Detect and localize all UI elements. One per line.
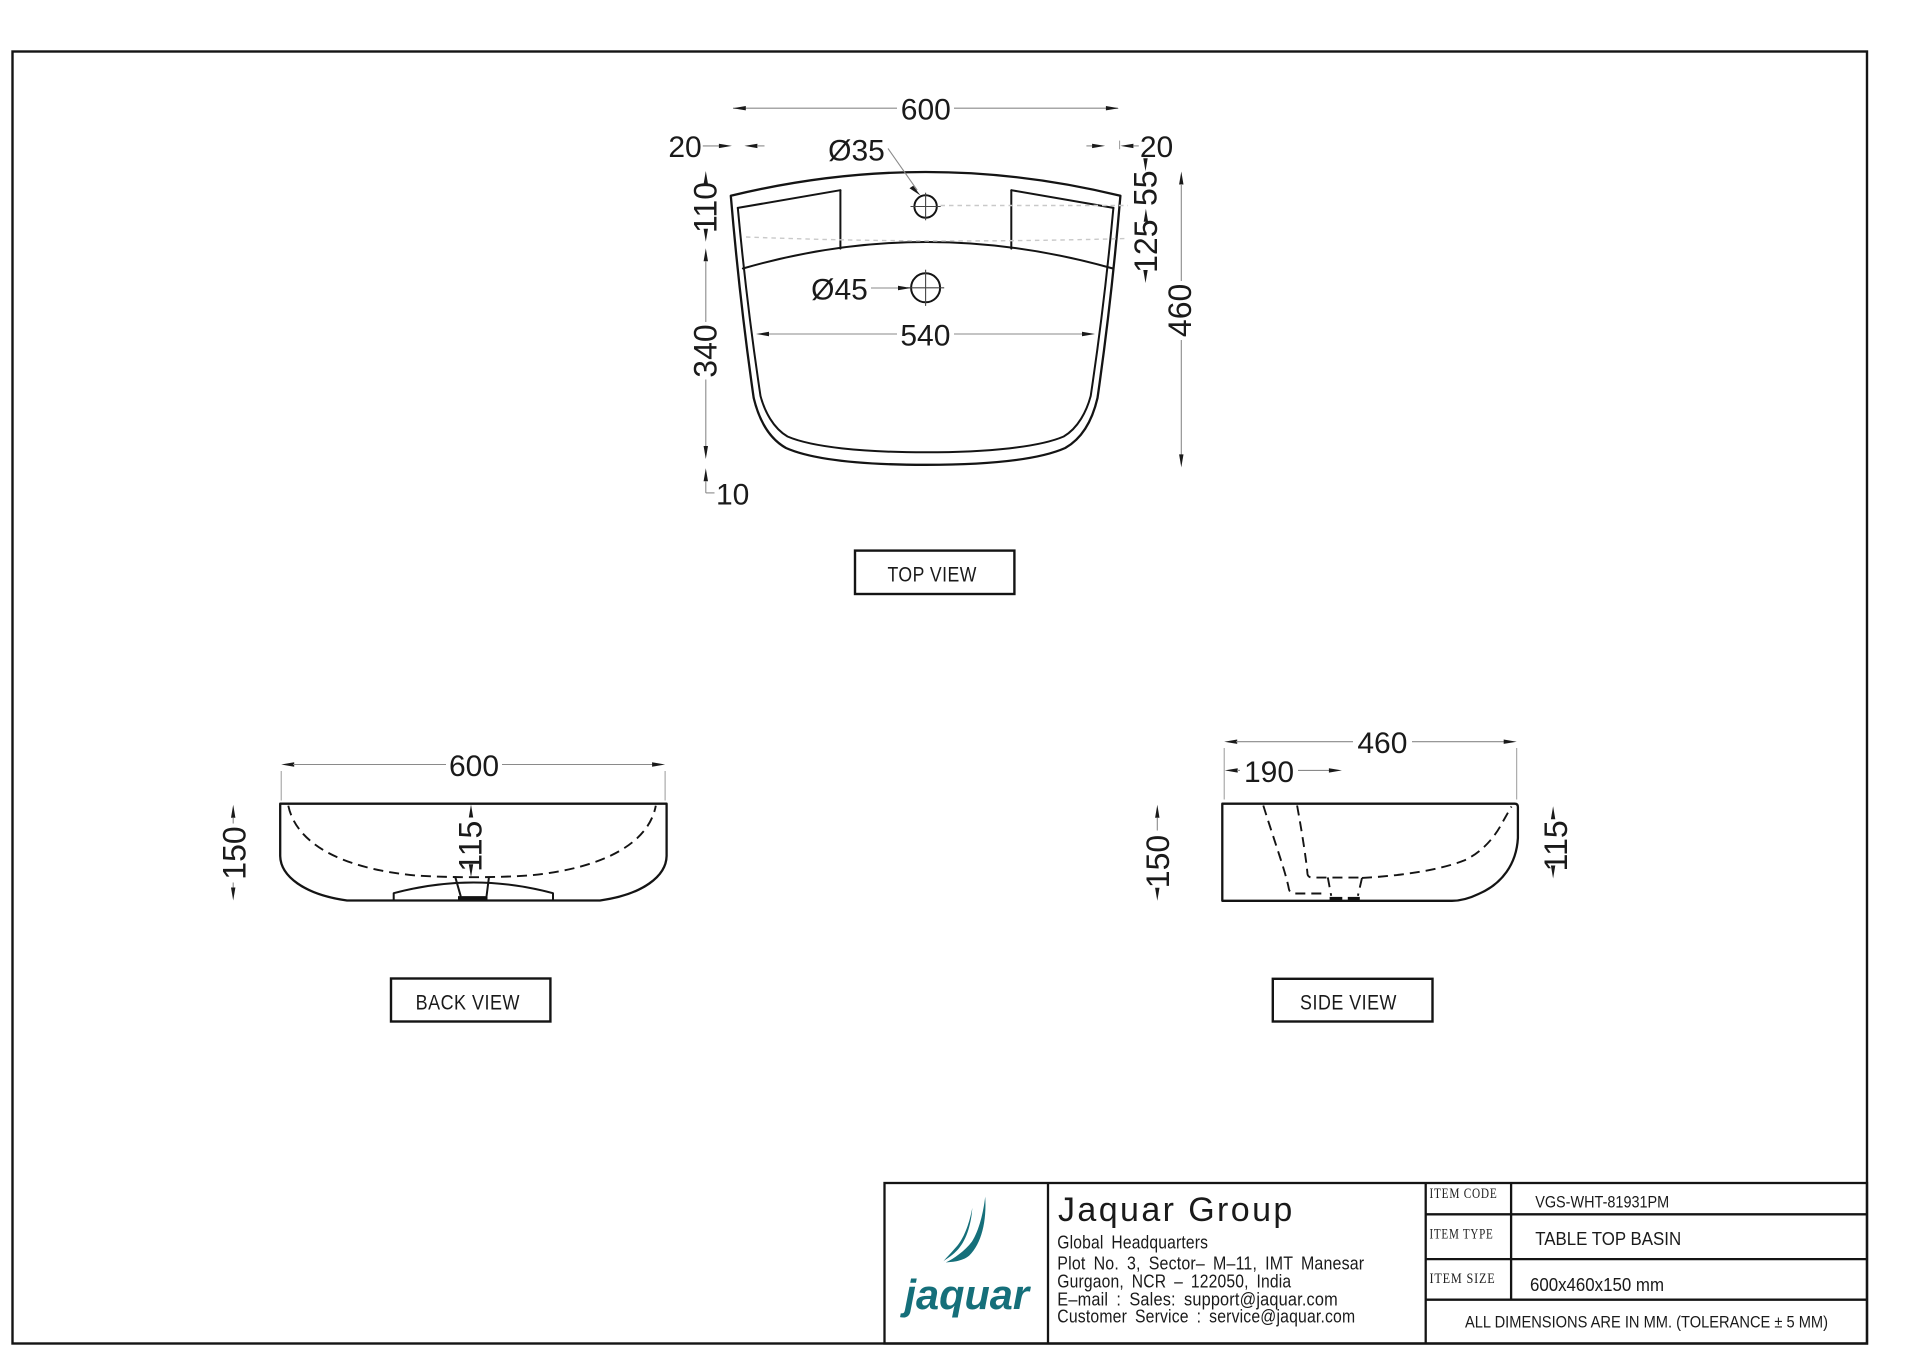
- svg-text:190: 190: [1244, 756, 1294, 789]
- svg-text:SIDE VIEW: SIDE VIEW: [1300, 991, 1397, 1015]
- svg-text:150: 150: [216, 826, 252, 879]
- svg-text:ALL DIMENSIONS ARE IN MM. (TOL: ALL DIMENSIONS ARE IN MM. (TOLERANCE ± 5…: [1465, 1314, 1828, 1332]
- svg-text:Ø35: Ø35: [828, 134, 885, 167]
- svg-text:Ø45: Ø45: [811, 274, 868, 307]
- svg-text:600x460x150 mm: 600x460x150 mm: [1530, 1275, 1664, 1295]
- svg-text:ITEM CODE: ITEM CODE: [1430, 1186, 1498, 1202]
- svg-text:TABLE TOP BASIN: TABLE TOP BASIN: [1535, 1229, 1681, 1249]
- svg-text:55: 55: [1127, 170, 1163, 206]
- svg-text:ITEM SIZE: ITEM SIZE: [1430, 1271, 1496, 1287]
- svg-text:Jaquar Group: Jaquar Group: [1058, 1191, 1295, 1229]
- svg-text:Global Headquarters: Global Headquarters: [1057, 1232, 1208, 1253]
- svg-text:VGS-WHT-81931PM: VGS-WHT-81931PM: [1535, 1193, 1669, 1212]
- svg-text:600: 600: [901, 94, 951, 127]
- svg-text:460: 460: [1162, 284, 1198, 337]
- svg-text:600: 600: [449, 750, 499, 783]
- svg-text:Customer Service : service@jaq: Customer Service : service@jaquar.com: [1057, 1306, 1355, 1327]
- svg-text:110: 110: [687, 182, 723, 233]
- svg-text:ITEM TYPE: ITEM TYPE: [1430, 1226, 1494, 1242]
- svg-text:540: 540: [900, 320, 950, 353]
- svg-text:460: 460: [1357, 727, 1407, 760]
- svg-text:115: 115: [452, 821, 488, 872]
- svg-text:340: 340: [687, 324, 723, 377]
- svg-text:125: 125: [1128, 220, 1164, 273]
- svg-text:150: 150: [1140, 835, 1176, 888]
- svg-text:jaquar: jaquar: [900, 1271, 1032, 1318]
- svg-text:BACK VIEW: BACK VIEW: [416, 991, 520, 1015]
- svg-text:115: 115: [1538, 820, 1574, 871]
- svg-text:20: 20: [668, 131, 701, 164]
- svg-text:TOP VIEW: TOP VIEW: [888, 562, 977, 586]
- svg-text:10: 10: [716, 479, 749, 512]
